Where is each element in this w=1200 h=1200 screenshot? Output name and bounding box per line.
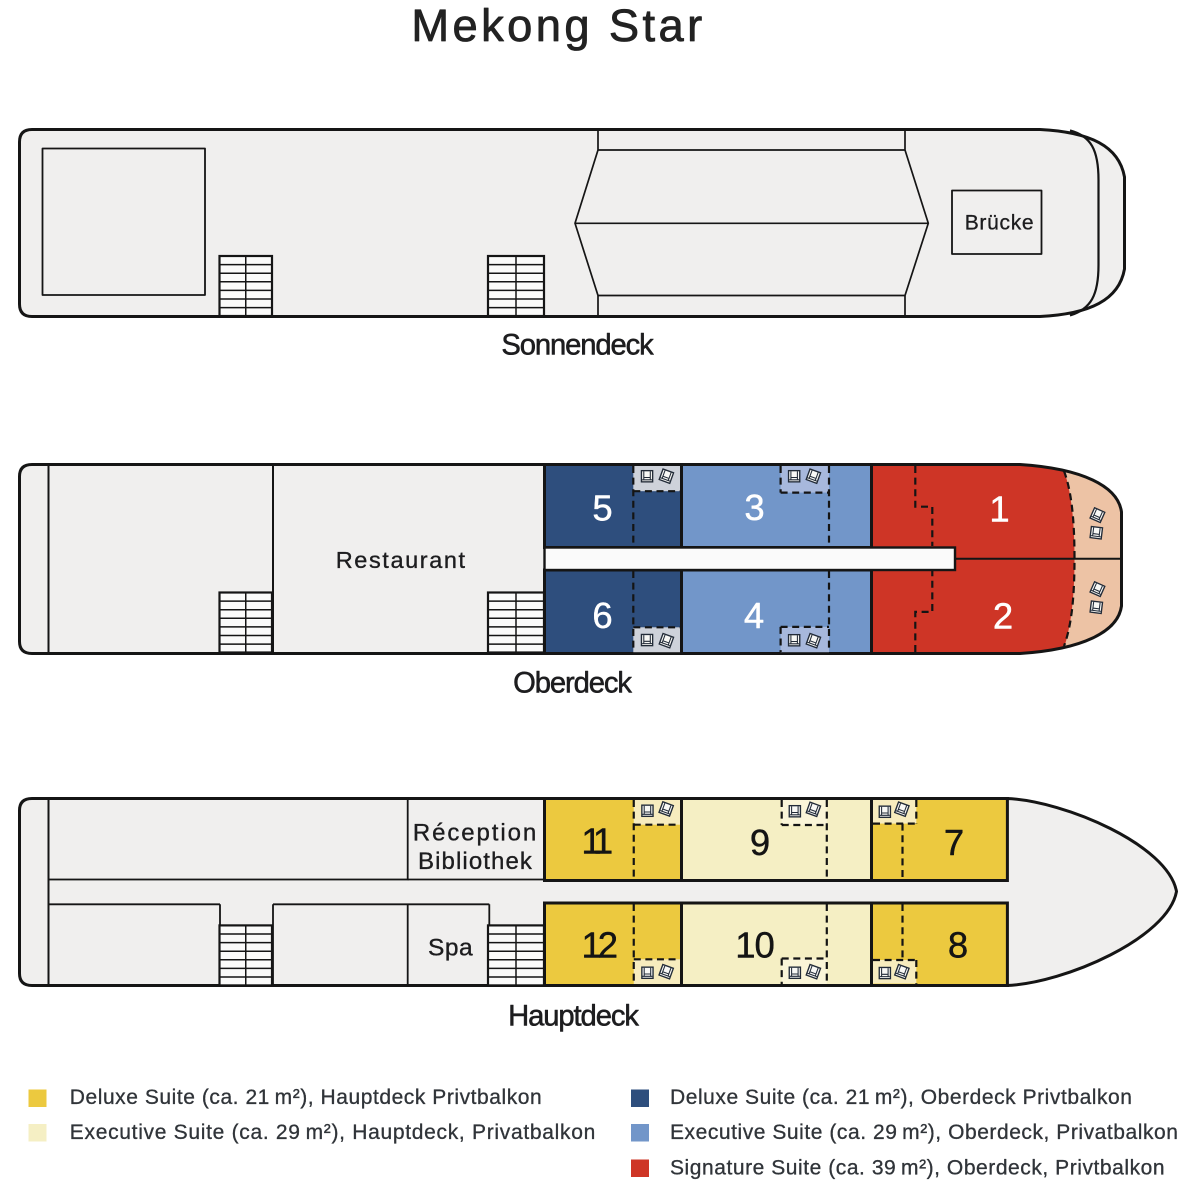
svg-text:7: 7 xyxy=(944,822,964,863)
svg-text:Mekong Star: Mekong Star xyxy=(411,0,705,51)
svg-text:Bibliothek: Bibliothek xyxy=(418,848,533,875)
svg-text:3: 3 xyxy=(744,487,764,528)
svg-text:Signature Suite (ca. 39 m²), O: Signature Suite (ca. 39 m²), Oberdeck, P… xyxy=(670,1157,1165,1180)
svg-text:2: 2 xyxy=(993,595,1013,636)
svg-text:Hauptdeck: Hauptdeck xyxy=(508,1000,639,1032)
svg-text:5: 5 xyxy=(592,487,612,528)
svg-text:Deluxe Suite (ca. 21 m²), Ober: Deluxe Suite (ca. 21 m²), Oberdeck Privt… xyxy=(670,1086,1133,1109)
svg-text:6: 6 xyxy=(592,595,612,636)
svg-text:Sonnendeck: Sonnendeck xyxy=(501,329,654,361)
svg-text:Restaurant: Restaurant xyxy=(336,547,467,573)
svg-text:9: 9 xyxy=(750,822,770,863)
svg-text:12: 12 xyxy=(581,924,616,965)
svg-text:Spa: Spa xyxy=(428,935,473,962)
svg-text:Executive Suite (ca. 29 m²), H: Executive Suite (ca. 29 m²), Hauptdeck, … xyxy=(70,1121,596,1144)
svg-text:Brücke: Brücke xyxy=(965,212,1035,235)
svg-text:Executive Suite (ca. 29 m²), O: Executive Suite (ca. 29 m²), Oberdeck, P… xyxy=(670,1121,1178,1144)
svg-text:Oberdeck: Oberdeck xyxy=(513,667,632,699)
svg-text:1: 1 xyxy=(989,488,1009,529)
svg-text:Deluxe Suite (ca. 21 m²), Haup: Deluxe Suite (ca. 21 m²), Hauptdeck Priv… xyxy=(70,1086,542,1109)
svg-text:8: 8 xyxy=(948,924,968,965)
svg-text:4: 4 xyxy=(744,595,764,636)
svg-text:Réception: Réception xyxy=(413,820,538,847)
svg-text:10: 10 xyxy=(735,924,774,965)
